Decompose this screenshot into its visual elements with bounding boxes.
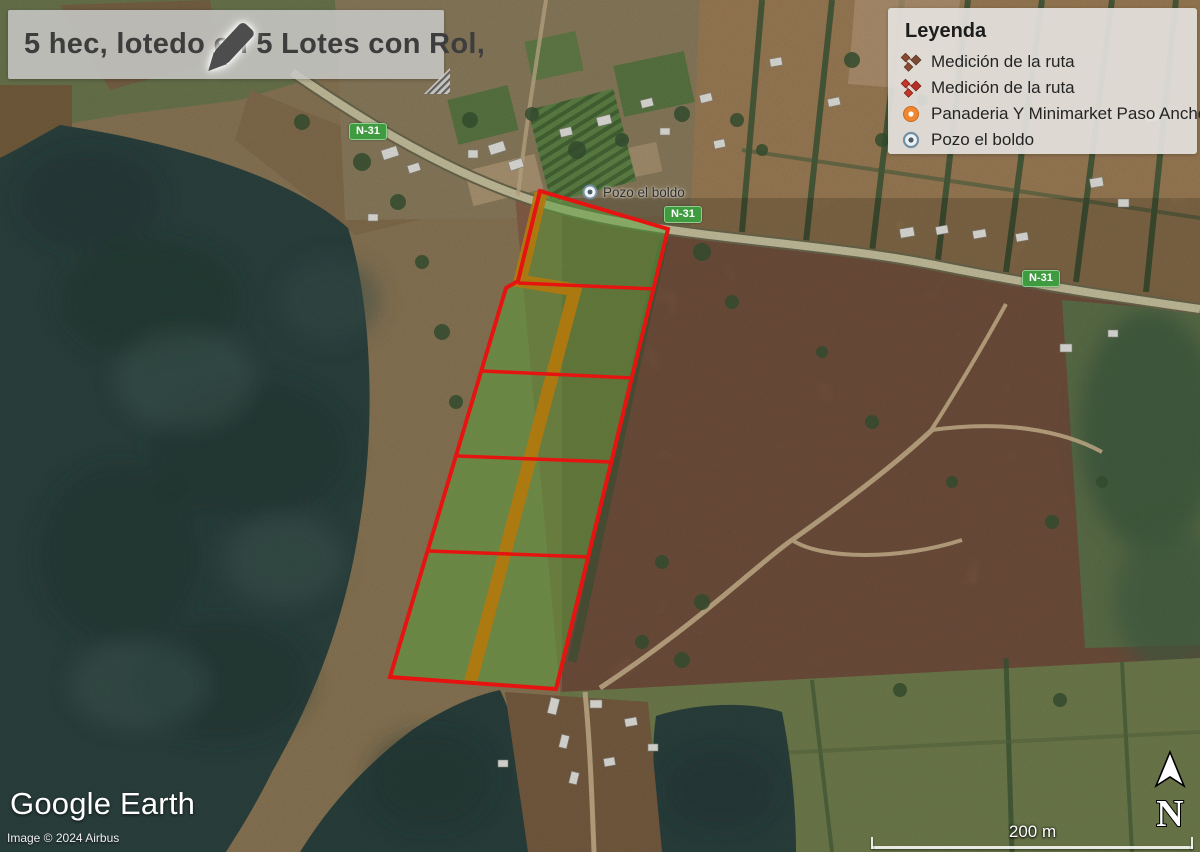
poi-label-text: Pozo el boldo (603, 185, 685, 200)
imagery-attribution: Image © 2024 Airbus (7, 831, 119, 845)
legend-item-route-1: Medición de la ruta (898, 49, 1197, 75)
legend-item-route-2: Medición de la ruta (898, 75, 1197, 101)
google-earth-logo: Google Earth (10, 786, 195, 822)
poi-pozo-el-boldo: Pozo el boldo (582, 184, 685, 200)
poi-circle-icon (898, 103, 924, 125)
edit-pencil-icon[interactable] (180, 6, 272, 98)
route-badge-n31: N-31 (1022, 270, 1060, 287)
route-measure-icon (898, 77, 924, 99)
north-arrow: N (1146, 750, 1194, 836)
north-label: N (1156, 793, 1183, 835)
scalebar-tick-left (871, 837, 873, 849)
legend-item-pozo: Pozo el boldo (898, 127, 1197, 153)
google-earth-logo-text: Google Earth (10, 786, 195, 821)
scalebar-label: 200 m (872, 822, 1193, 842)
scalebar-tick-right (1191, 837, 1193, 849)
legend-title: Leyenda (905, 20, 1197, 43)
route-badge-n31: N-31 (349, 123, 387, 140)
route-badge-n31: N-31 (664, 206, 702, 223)
legend-item-label: Medición de la ruta (931, 78, 1075, 98)
legend-item-label: Pozo el boldo (931, 130, 1034, 150)
banner-resize-grip[interactable] (424, 68, 450, 94)
scalebar-line (872, 846, 1193, 849)
well-marker-icon (582, 184, 598, 200)
route-measure-icon (898, 51, 924, 73)
legend-item-label: Panaderia Y Minimarket Paso Ancho (931, 104, 1200, 124)
google-earth-map-canvas[interactable]: Pozo el boldo N-31 N-31 N-31 5 hec, lote… (0, 0, 1200, 852)
legend-item-panaderia: Panaderia Y Minimarket Paso Ancho (898, 101, 1197, 127)
legend-panel: Leyenda Medición de la ruta (888, 8, 1197, 154)
well-circle-icon (898, 129, 924, 151)
legend-item-label: Medición de la ruta (931, 52, 1075, 72)
